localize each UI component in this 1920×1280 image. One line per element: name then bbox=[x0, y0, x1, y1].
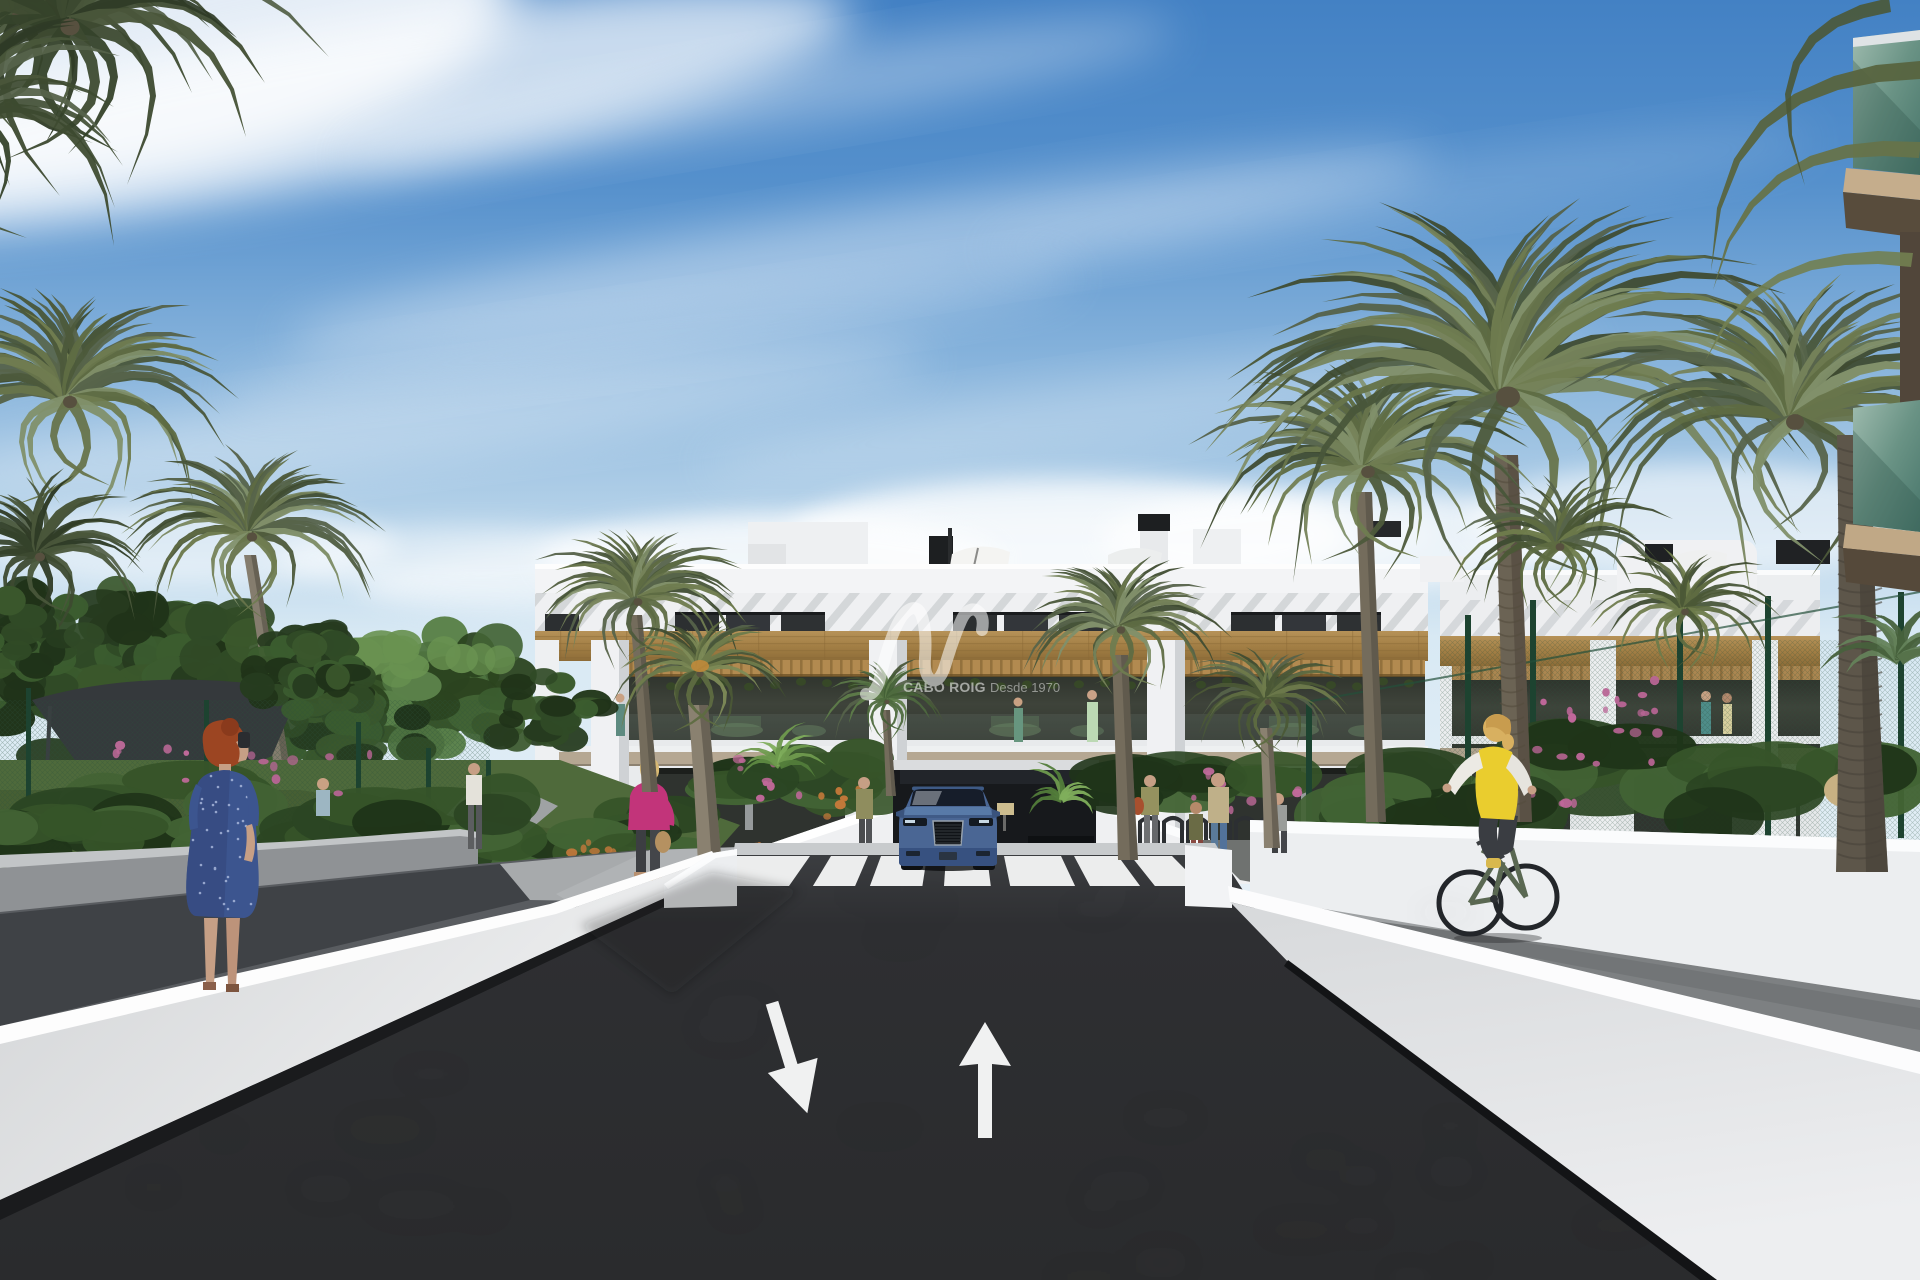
svg-text:Desde 1970: Desde 1970 bbox=[990, 680, 1060, 695]
svg-text:CABO ROIG: CABO ROIG bbox=[903, 679, 986, 695]
